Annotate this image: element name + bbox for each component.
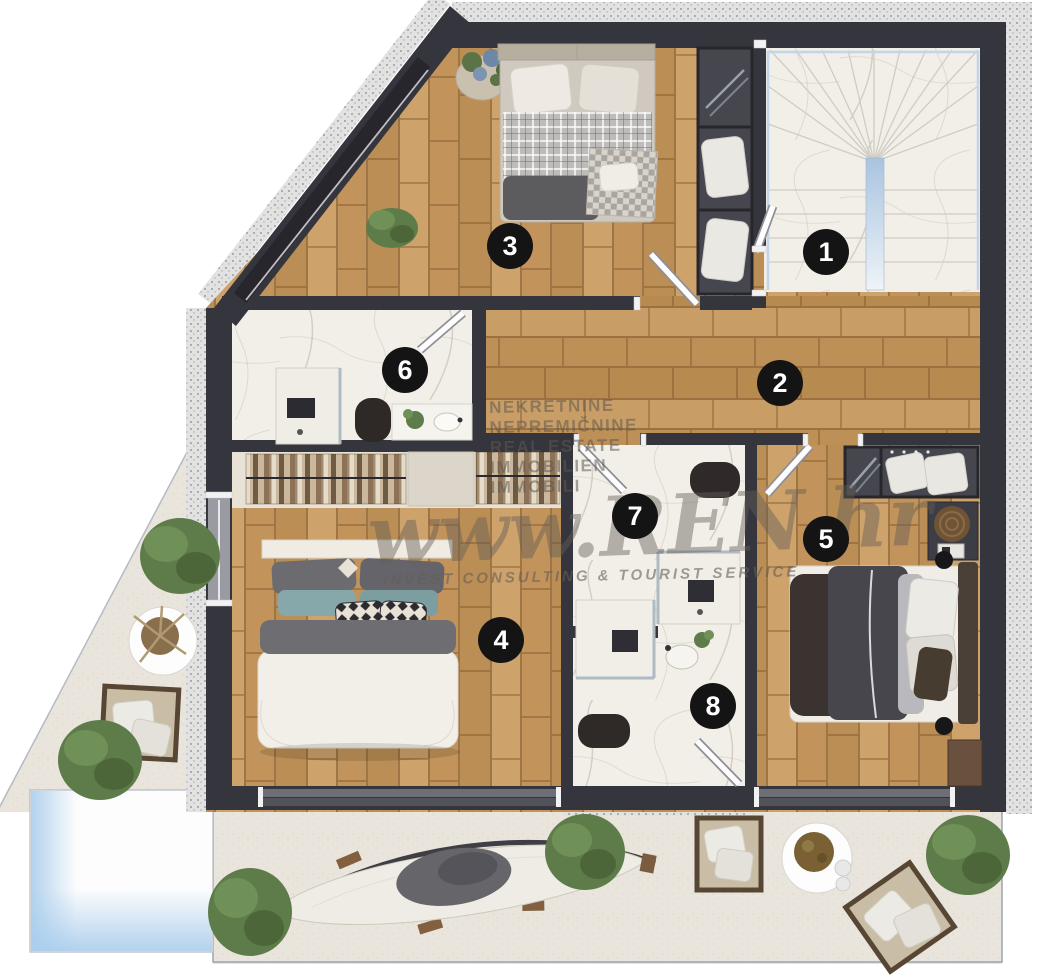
bedroom-3-wardrobe [698, 48, 752, 294]
floor-plan: NEKRETNINE NEPREMIČNINE REAL ESTATE IMMO… [0, 0, 1051, 979]
room-badge-8: 8 [690, 683, 736, 729]
lounge-chair-bottom-terrace-1 [697, 818, 761, 890]
floor-plan-drawing [0, 0, 1051, 979]
room-badge-5: 5 [803, 516, 849, 562]
room-badge-2: 2 [757, 360, 803, 406]
bedroom-5-bed [790, 551, 978, 735]
walk-in-closet [246, 452, 560, 506]
bedroom-5-nightstand [928, 502, 978, 560]
hallway-floor [484, 296, 982, 445]
room-badge-3: 3 [487, 223, 533, 269]
round-table-left-terrace [129, 606, 197, 675]
room-badge-4: 4 [478, 617, 524, 663]
bedroom-5-closet [845, 447, 978, 497]
pool [30, 790, 213, 952]
bedroom-5-dresser [948, 740, 982, 786]
room-badge-7: 7 [612, 493, 658, 539]
round-table-bottom-terrace [782, 823, 852, 893]
bedroom-3-bed [498, 44, 658, 222]
staircase-column [866, 158, 884, 290]
room-badge-6: 6 [382, 347, 428, 393]
room-badge-1: 1 [803, 229, 849, 275]
